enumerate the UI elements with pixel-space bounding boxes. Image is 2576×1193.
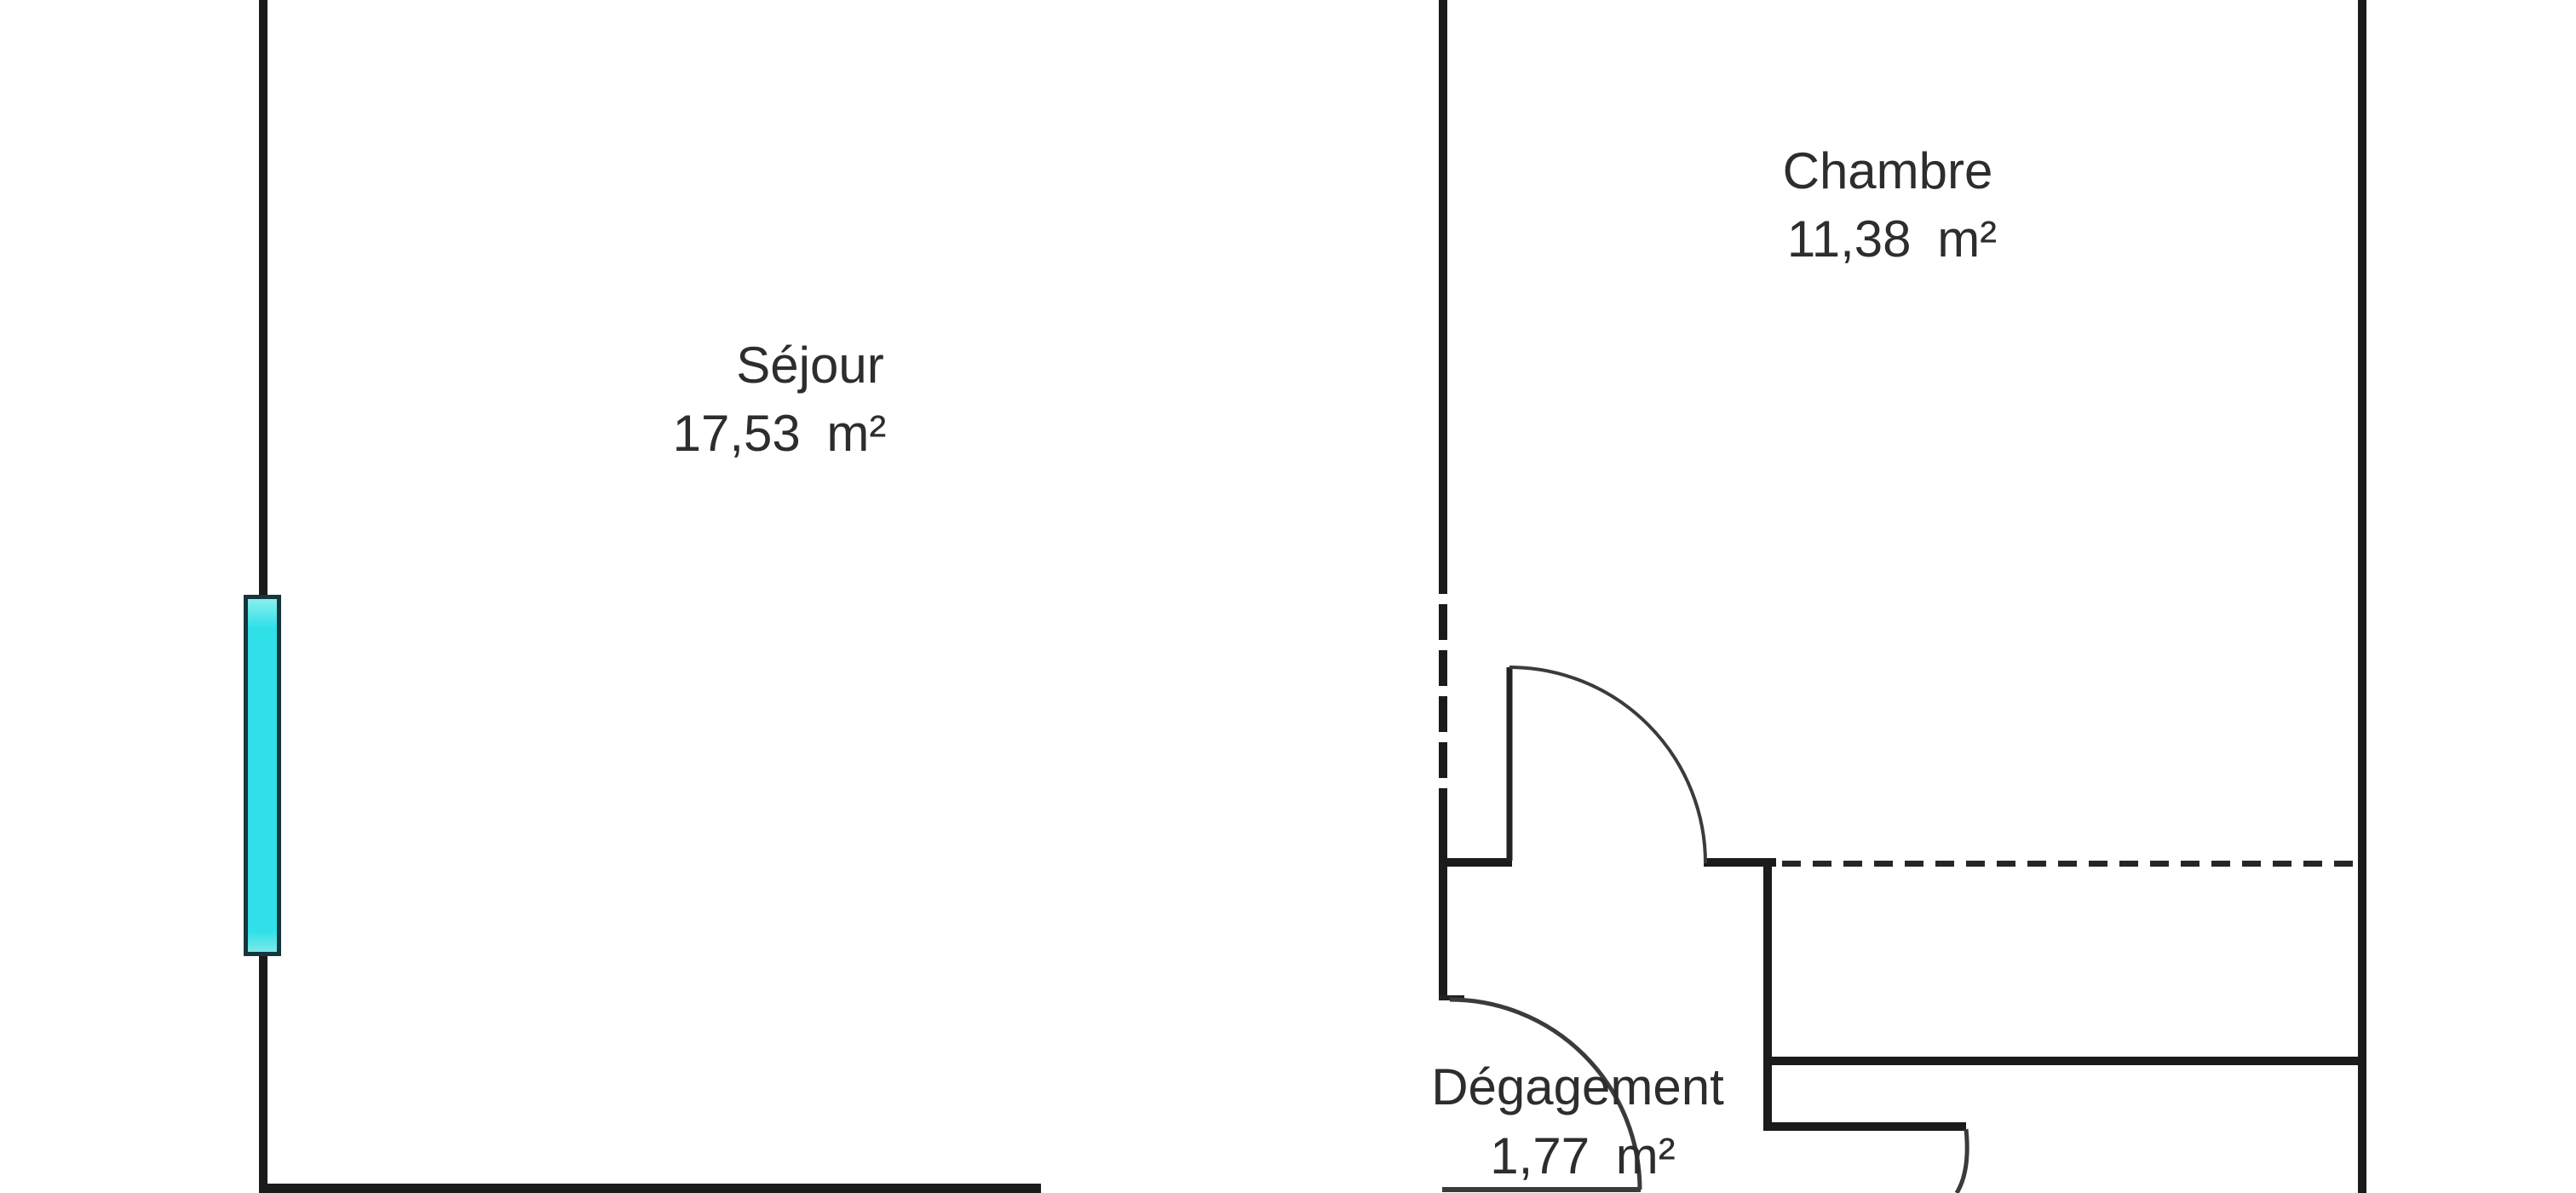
sejour-room-area: 17,53 m² (566, 407, 992, 460)
lower-right-door-arc (1957, 1129, 1967, 1193)
sejour-room-name: Séjour (597, 339, 1023, 392)
door-arcs-layer (0, 0, 2576, 1193)
degagement-room-area: 1,77 m² (1370, 1130, 1796, 1183)
degagement-room-name: Dégagement (1365, 1061, 1791, 1114)
floor-plan: Séjour 17,53 m² Chambre 11,38 m² Dégagem… (0, 0, 2576, 1193)
chambre-room-name: Chambre (1675, 145, 2101, 198)
chambre-room-area: 11,38 m² (1679, 213, 2105, 266)
chambre-door-arc (1509, 667, 1705, 863)
